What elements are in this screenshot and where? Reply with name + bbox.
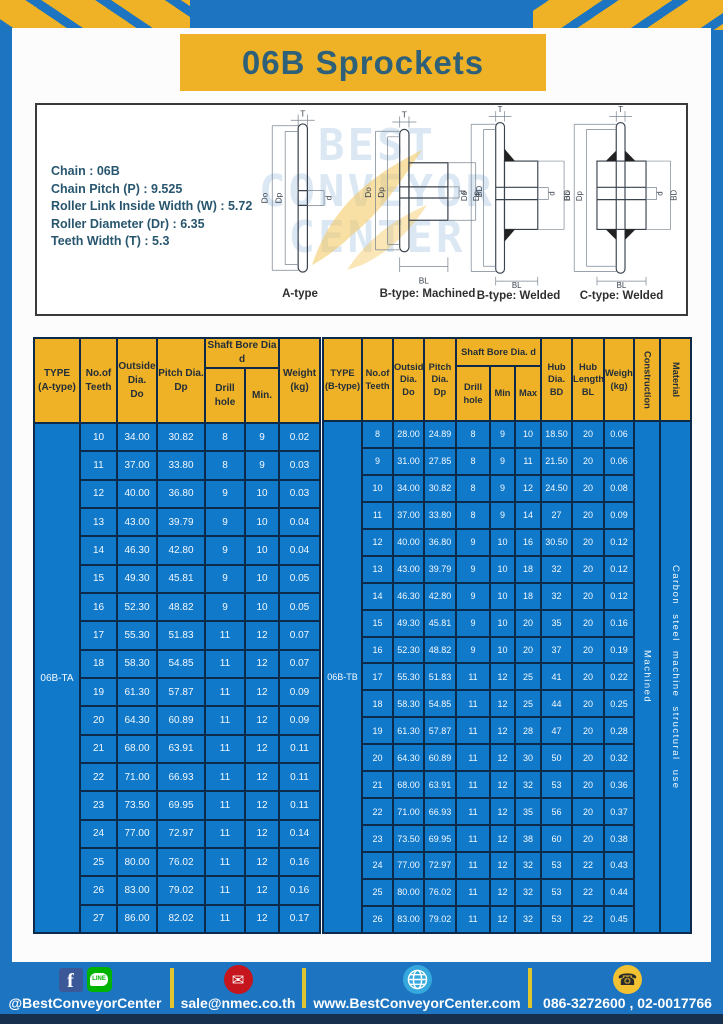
figure-caption: C-type: Welded [580,290,664,302]
footer-social: f LINE @BestConveyorCenter [0,962,170,1014]
table-cell: 10 [245,536,279,564]
col-header-drill-hole: Drill hole [456,366,490,421]
table-cell: 32 [515,906,541,933]
table-cell: 0.16 [279,876,320,904]
globe-icon [403,965,432,994]
table-cell: 34.00 [117,423,157,451]
table-cell: 13 [80,508,117,536]
col-header-pitch-dia: Pitch Dia. Dp [424,338,456,421]
dim-label: Do [363,187,373,198]
table-cell: 71.00 [393,798,424,825]
table-cell: 17 [362,663,393,690]
table-cell: 43.00 [393,556,424,583]
table-cell: 54.85 [424,690,456,717]
contact-footer: f LINE @BestConveyorCenter ✉ sale@nmec.c… [0,962,723,1014]
table-cell: 60.89 [424,744,456,771]
table-cell: 8 [205,423,245,451]
table-cell: 10 [490,583,515,610]
table-cell: 12 [490,663,515,690]
table-cell: 17 [80,621,117,649]
content-sheet: 06B Sprockets BEST CONVEYOR CENTER Chain… [12,28,711,962]
table-cell: 20 [572,448,604,475]
table-cell: 80.00 [117,848,157,876]
table-cell: 32 [515,879,541,906]
table-cell: 27 [80,905,117,933]
figure-a-type: T Do Dp d A-type [250,109,350,300]
table-cell: 0.19 [604,637,634,664]
table-cell: 18 [80,650,117,678]
dim-label: BD [670,189,679,200]
table-cell: 15 [362,610,393,637]
col-header-hub-length: Hub Length BL [572,338,604,421]
table-a-header: TYPE (A-type) No.of Teeth Outside Dia. D… [34,338,320,423]
table-cell: 51.83 [157,621,205,649]
table-cell: 8 [362,421,393,448]
table-cell: 39.79 [157,508,205,536]
table-cell: 11 [205,848,245,876]
table-cell: 34.00 [393,475,424,502]
table-cell: 46.30 [117,536,157,564]
table-cell: 9 [490,448,515,475]
table-cell: 43.00 [117,508,157,536]
table-cell: 10 [245,593,279,621]
table-cell: 21 [362,771,393,798]
construction-cell: Machined [634,421,660,933]
table-cell: 12 [245,706,279,734]
table-cell: 12 [245,621,279,649]
table-cell: 11 [456,906,490,933]
table-cell: 0.22 [604,663,634,690]
table-cell: 8 [456,448,490,475]
table-cell: 20 [572,744,604,771]
table-cell: 40.00 [393,529,424,556]
table-cell: 9 [456,610,490,637]
table-cell: 69.95 [157,791,205,819]
table-cell: 19 [80,678,117,706]
table-cell: 11 [205,735,245,763]
table-cell: 16 [80,593,117,621]
table-cell: 0.43 [604,852,634,879]
table-cell: 26 [362,906,393,933]
table-cell: 0.12 [604,556,634,583]
table-cell: 8 [456,421,490,448]
table-cell: 9 [205,508,245,536]
table-cell: 0.03 [279,480,320,508]
page-title: 06B Sprockets [242,44,484,82]
table-cell: 24 [80,820,117,848]
table-cell: 0.05 [279,565,320,593]
table-cell: 20 [572,798,604,825]
table-cell: 10 [245,565,279,593]
table-cell: 71.00 [117,763,157,791]
table-b-header: TYPE (B-type) No.of Teeth Outside Dia. D… [323,338,691,421]
table-cell: 0.37 [604,798,634,825]
table-cell: 47 [541,717,572,744]
table-cell: 11 [456,852,490,879]
table-cell: 9 [490,502,515,529]
table-cell: 76.02 [157,848,205,876]
dim-label: Do [460,190,469,201]
table-cell: 11 [205,650,245,678]
dim-label: d [656,191,665,195]
table-cell: 18 [515,556,541,583]
table-cell: 20 [515,637,541,664]
col-header-min: Min. [245,368,279,423]
table-cell: 20 [362,744,393,771]
table-cell: 0.12 [604,529,634,556]
table-cell: 11 [456,717,490,744]
table-cell: 57.87 [157,678,205,706]
figure-c-welded: T Do Dp d BD [560,105,683,302]
table-cell: 20 [572,475,604,502]
table-cell: 0.09 [279,678,320,706]
table-cell: 12 [490,717,515,744]
table-cell: 64.30 [393,744,424,771]
table-cell: 45.81 [424,610,456,637]
table-cell: 12 [490,906,515,933]
table-cell: 10 [490,529,515,556]
table-cell: 20 [572,637,604,664]
table-cell: 73.50 [393,825,424,852]
col-header-outside-dia: Outside Dia. Do [393,338,424,421]
table-cell: 63.91 [157,735,205,763]
table-cell: 30.82 [157,423,205,451]
table-cell: 19 [362,717,393,744]
table-cell: 0.07 [279,650,320,678]
table-cell: 30.50 [541,529,572,556]
col-header-teeth: No.of Teeth [80,338,117,423]
table-cell: 53 [541,852,572,879]
table-cell: 11 [456,825,490,852]
dim-label: d [323,195,333,200]
table-cell: 12 [245,848,279,876]
table-cell: 9 [205,536,245,564]
table-cell: 12 [362,529,393,556]
table-cell: 14 [362,583,393,610]
dim-label: BL [419,275,430,285]
table-a-body: 06B-TA1034.0030.82890.021137.0033.80890.… [34,423,320,933]
bottom-navy-strip [0,1014,723,1024]
table-cell: 8 [205,451,245,479]
table-cell: 11 [205,763,245,791]
table-cell: 86.00 [117,905,157,933]
table-cell: 27 [541,502,572,529]
col-header-max: Max [515,366,541,421]
table-cell: 30.82 [424,475,456,502]
social-handle: @BestConveyorCenter [9,995,162,1011]
table-cell: 11 [205,621,245,649]
spec-line: Chain Pitch (P) : 9.525 [51,181,252,199]
dim-label: T [402,109,407,119]
table-cell: 20 [80,706,117,734]
table-cell: 33.80 [424,502,456,529]
table-cell: 77.00 [393,852,424,879]
email-icon: ✉ [224,965,253,994]
table-cell: 12 [245,735,279,763]
table-cell: 12 [245,650,279,678]
table-cell: 37.00 [393,502,424,529]
table-cell: 11 [456,879,490,906]
table-cell: 0.03 [279,451,320,479]
col-header-drill-hole: Drill hole [205,368,245,423]
table-cell: 58.30 [117,650,157,678]
table-cell: 20 [572,690,604,717]
table-cell: 12 [245,876,279,904]
table-cell: 35 [541,610,572,637]
table-cell: 10 [490,556,515,583]
sprocket-section-drawing: T Do Dp d [250,109,350,287]
col-header-weight: Weight (kg) [604,338,634,421]
table-cell: 11 [205,876,245,904]
table-cell: 0.05 [279,593,320,621]
table-cell: 61.30 [117,678,157,706]
table-cell: 0.04 [279,508,320,536]
footer-phone: ☎ 086-3272600 , 02-0017766 [532,962,723,1014]
table-cell: 33.80 [157,451,205,479]
table-cell: 10 [245,508,279,536]
figure-caption: B-type: Welded [477,290,561,302]
col-header-weight: Weight (kg) [279,338,320,423]
table-cell: 9 [456,556,490,583]
table-cell: 28.00 [393,421,424,448]
table-cell: 12 [490,852,515,879]
table-cell: 25 [515,690,541,717]
table-cell: 0.06 [604,448,634,475]
table-cell: 9 [456,637,490,664]
table-cell: 40.00 [117,480,157,508]
spec-line: Teeth Width (T) : 5.3 [51,233,252,251]
table-cell: 58.30 [393,690,424,717]
table-cell: 10 [362,475,393,502]
table-cell: 12 [80,480,117,508]
hazard-stripes-right [533,0,723,30]
table-cell: 63.91 [424,771,456,798]
table-cell: 12 [490,744,515,771]
table-cell: 80.00 [393,879,424,906]
table-cell: 13 [362,556,393,583]
table-cell: 10 [80,423,117,451]
table-cell: 0.09 [604,502,634,529]
table-cell: 10 [245,480,279,508]
table-cell: 37 [541,637,572,664]
phone-icon: ☎ [613,965,642,994]
table-cell: 0.45 [604,906,634,933]
table-cell: 12 [245,905,279,933]
email-address: sale@nmec.co.th [181,995,296,1011]
col-header-type: TYPE (A-type) [34,338,80,423]
table-cell: 0.02 [279,423,320,451]
table-cell: 0.28 [604,717,634,744]
table-cell: 32 [515,771,541,798]
table-cell: 37.00 [117,451,157,479]
table-cell: 0.38 [604,825,634,852]
table-cell: 9 [205,593,245,621]
website-url: www.BestConveyorCenter.com [313,995,520,1011]
table-cell: 0.11 [279,763,320,791]
table-cell: 18.50 [541,421,572,448]
table-cell: 11 [456,663,490,690]
table-cell: 56 [541,798,572,825]
table-cell: 82.02 [157,905,205,933]
table-cell: 24.50 [541,475,572,502]
sprocket-section-drawing: T Do Dp d BD [560,105,683,289]
table-cell: 11 [205,791,245,819]
table-cell: 52.30 [117,593,157,621]
table-cell: 12 [245,678,279,706]
table-a-type-sprockets: TYPE (A-type) No.of Teeth Outside Dia. D… [33,337,321,934]
table-cell: 72.97 [424,852,456,879]
table-cell: 32 [541,583,572,610]
table-cell: 72.97 [157,820,205,848]
dim-label: Dp [575,190,584,201]
phone-numbers: 086-3272600 , 02-0017766 [543,995,712,1011]
material-cell: Carbon steel machine structural use [660,421,691,933]
table-cell: 11 [456,690,490,717]
table-cell: 35 [515,798,541,825]
table-b-type-sprockets: TYPE (B-type) No.of Teeth Outside Dia. D… [322,337,692,934]
col-header-type: TYPE (B-type) [323,338,362,421]
chain-specs: Chain : 06B Chain Pitch (P) : 9.525 Roll… [51,163,252,251]
table-cell: 36.80 [424,529,456,556]
table-cell: 9 [456,529,490,556]
table-cell: 49.30 [117,565,157,593]
col-header-material: Material [660,338,691,421]
line-bubble: LINE [90,973,108,986]
table-cell: 66.93 [157,763,205,791]
table-cell: 60.89 [157,706,205,734]
table-cell: 0.08 [604,475,634,502]
table-cell: 12 [490,879,515,906]
spec-line: Roller Diameter (Dr) : 6.35 [51,216,252,234]
table-cell: 20 [572,663,604,690]
table-cell: 55.30 [393,663,424,690]
table-cell: 10 [490,637,515,664]
table-cell: 22 [572,852,604,879]
table-cell: 57.87 [424,717,456,744]
table-cell: 32 [541,556,572,583]
dim-label: BL [512,281,522,289]
col-header-hub-dia: Hub Dia. BD [541,338,572,421]
table-cell: 53 [541,771,572,798]
diagram-panel: BEST CONVEYOR CENTER Chain : 06B Chain P… [35,103,688,316]
table-cell: 73.50 [117,791,157,819]
table-cell: 42.80 [157,536,205,564]
table-cell: 31.00 [393,448,424,475]
table-cell: 9 [245,423,279,451]
dim-label: T [300,109,305,119]
table-cell: 23 [362,825,393,852]
table-cell: 12 [490,690,515,717]
figure-caption: A-type [282,288,318,300]
dim-label: BL [617,281,627,289]
table-cell: 15 [80,565,117,593]
table-cell: 0.09 [279,706,320,734]
spec-line: Roller Link Inside Width (W) : 5.72 [51,198,252,216]
table-cell: 12 [245,820,279,848]
col-header-teeth: No.of Teeth [362,338,393,421]
table-cell: 38 [515,825,541,852]
table-cell: 20 [572,717,604,744]
table-cell: 0.12 [604,583,634,610]
title-banner: 06B Sprockets [180,34,546,91]
table-cell: 0.44 [604,879,634,906]
table-cell: 45.81 [157,565,205,593]
table-cell: 21.50 [541,448,572,475]
table-cell: 8 [456,475,490,502]
table-cell: 10 [490,610,515,637]
table-cell: 77.00 [117,820,157,848]
dim-label: Dp [376,187,386,198]
table-cell: 22 [572,879,604,906]
table-cell: 12 [490,771,515,798]
table-cell: 11 [80,451,117,479]
table-cell: 52.30 [393,637,424,664]
table-cell: 0.36 [604,771,634,798]
table-a-type-cell: 06B-TA [34,423,80,933]
col-header-pitch-dia: Pitch Dia. Dp [157,338,205,423]
table-cell: 9 [362,448,393,475]
table-cell: 28 [515,717,541,744]
table-cell: 11 [515,448,541,475]
table-cell: 20 [572,583,604,610]
table-cell: 11 [205,678,245,706]
dim-label: Do [563,190,572,201]
table-cell: 12 [515,475,541,502]
table-cell: 11 [362,502,393,529]
table-cell: 12 [490,825,515,852]
dim-label: Do [260,192,270,203]
table-cell: 0.16 [279,848,320,876]
table-cell: 0.11 [279,735,320,763]
table-cell: 0.04 [279,536,320,564]
table-cell: 9 [205,480,245,508]
table-cell: 20 [572,610,604,637]
table-cell: 12 [245,791,279,819]
table-cell: 83.00 [393,906,424,933]
col-header-min: Min [490,366,515,421]
table-cell: 39.79 [424,556,456,583]
table-b-type-cell: 06B-TB [323,421,362,933]
table-cell: 51.83 [424,663,456,690]
table-cell: 11 [205,820,245,848]
table-cell: 24.89 [424,421,456,448]
table-cell: 9 [490,421,515,448]
table-cell: 0.32 [604,744,634,771]
table-cell: 20 [572,771,604,798]
table-b-body: 06B-TB828.0024.89891018.50200.06Machined… [323,421,691,933]
table-cell: 11 [205,706,245,734]
table-cell: 18 [515,583,541,610]
table-cell: 11 [456,771,490,798]
table-cell: 0.17 [279,905,320,933]
dim-label: T [498,105,503,114]
table-cell: 21 [80,735,117,763]
table-cell: 16 [515,529,541,556]
dim-label: d [547,191,556,195]
table-cell: 79.02 [424,906,456,933]
spec-line: Chain : 06B [51,163,252,181]
table-cell: 76.02 [424,879,456,906]
catalog-page: 06B Sprockets BEST CONVEYOR CENTER Chain… [0,0,723,1024]
dim-label: T [618,105,623,114]
table-cell: 42.80 [424,583,456,610]
table-cell: 66.93 [424,798,456,825]
table-cell: 83.00 [117,876,157,904]
table-cell: 49.30 [393,610,424,637]
table-cell: 64.30 [117,706,157,734]
table-cell: 20 [572,556,604,583]
table-cell: 0.16 [604,610,634,637]
